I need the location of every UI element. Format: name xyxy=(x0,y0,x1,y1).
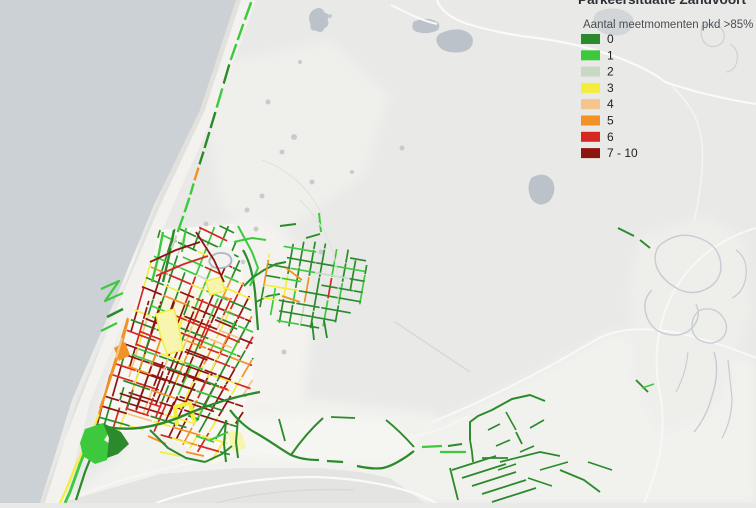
svg-text:6: 6 xyxy=(607,130,614,144)
svg-text:4: 4 xyxy=(607,97,614,111)
svg-text:5: 5 xyxy=(607,114,614,128)
svg-text:Parkeersituatie Zandvoort: Parkeersituatie Zandvoort xyxy=(578,0,747,7)
svg-text:0: 0 xyxy=(607,32,614,46)
svg-text:2: 2 xyxy=(607,65,614,79)
svg-text:3: 3 xyxy=(607,81,614,95)
svg-text:1: 1 xyxy=(607,48,614,62)
svg-text:Aantal meetmomenten pkd >85%: Aantal meetmomenten pkd >85% xyxy=(583,19,753,31)
svg-text:7 - 10: 7 - 10 xyxy=(607,146,638,160)
